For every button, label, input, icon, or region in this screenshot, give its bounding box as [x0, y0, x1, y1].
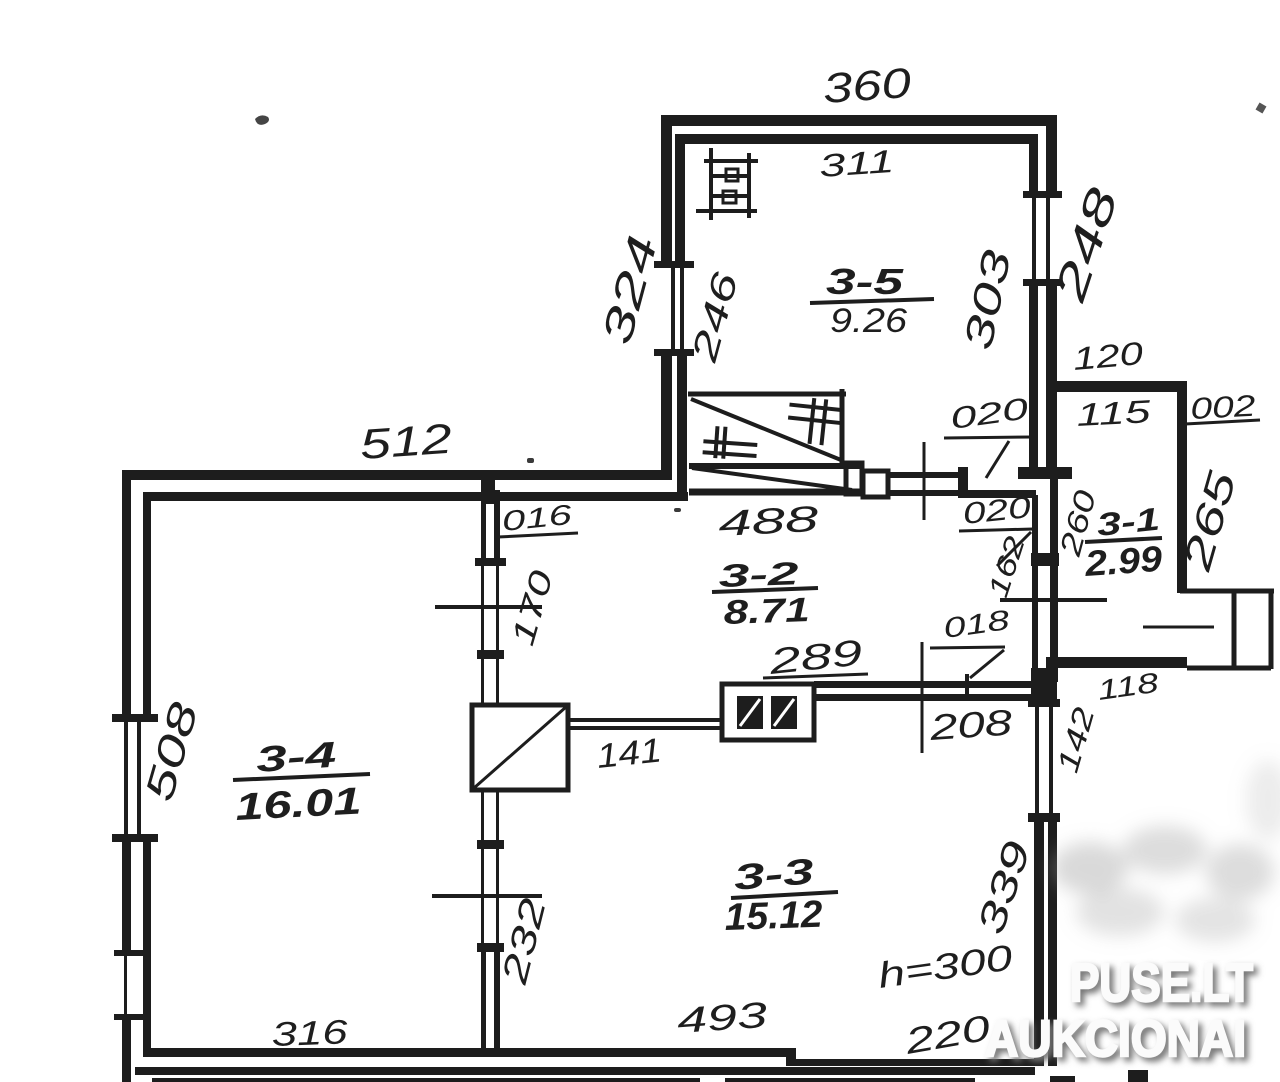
svg-text:PUSE.LT: PUSE.LT — [1070, 953, 1253, 1013]
svg-text:2.99: 2.99 — [1083, 538, 1164, 584]
svg-text:16.01: 16.01 — [234, 780, 362, 829]
svg-text:311: 311 — [818, 143, 895, 184]
svg-text:120: 120 — [1071, 335, 1144, 377]
svg-text:488: 488 — [717, 498, 819, 544]
svg-text:115: 115 — [1075, 393, 1151, 433]
svg-text:493: 493 — [676, 994, 769, 1041]
svg-text:AUKCIONAI: AUKCIONAI — [985, 1010, 1246, 1067]
svg-text:360: 360 — [821, 59, 913, 112]
svg-text:3-5: 3-5 — [826, 261, 904, 302]
svg-text:141: 141 — [595, 731, 664, 776]
svg-text:3-3: 3-3 — [732, 850, 815, 898]
svg-text:15.12: 15.12 — [724, 894, 823, 939]
svg-text:3-4: 3-4 — [255, 733, 338, 779]
svg-text:316: 316 — [271, 1013, 348, 1054]
svg-text:9.26: 9.26 — [830, 302, 907, 340]
svg-text:512: 512 — [358, 415, 453, 468]
svg-text:208: 208 — [927, 701, 1013, 748]
svg-text:8.71: 8.71 — [723, 591, 810, 632]
